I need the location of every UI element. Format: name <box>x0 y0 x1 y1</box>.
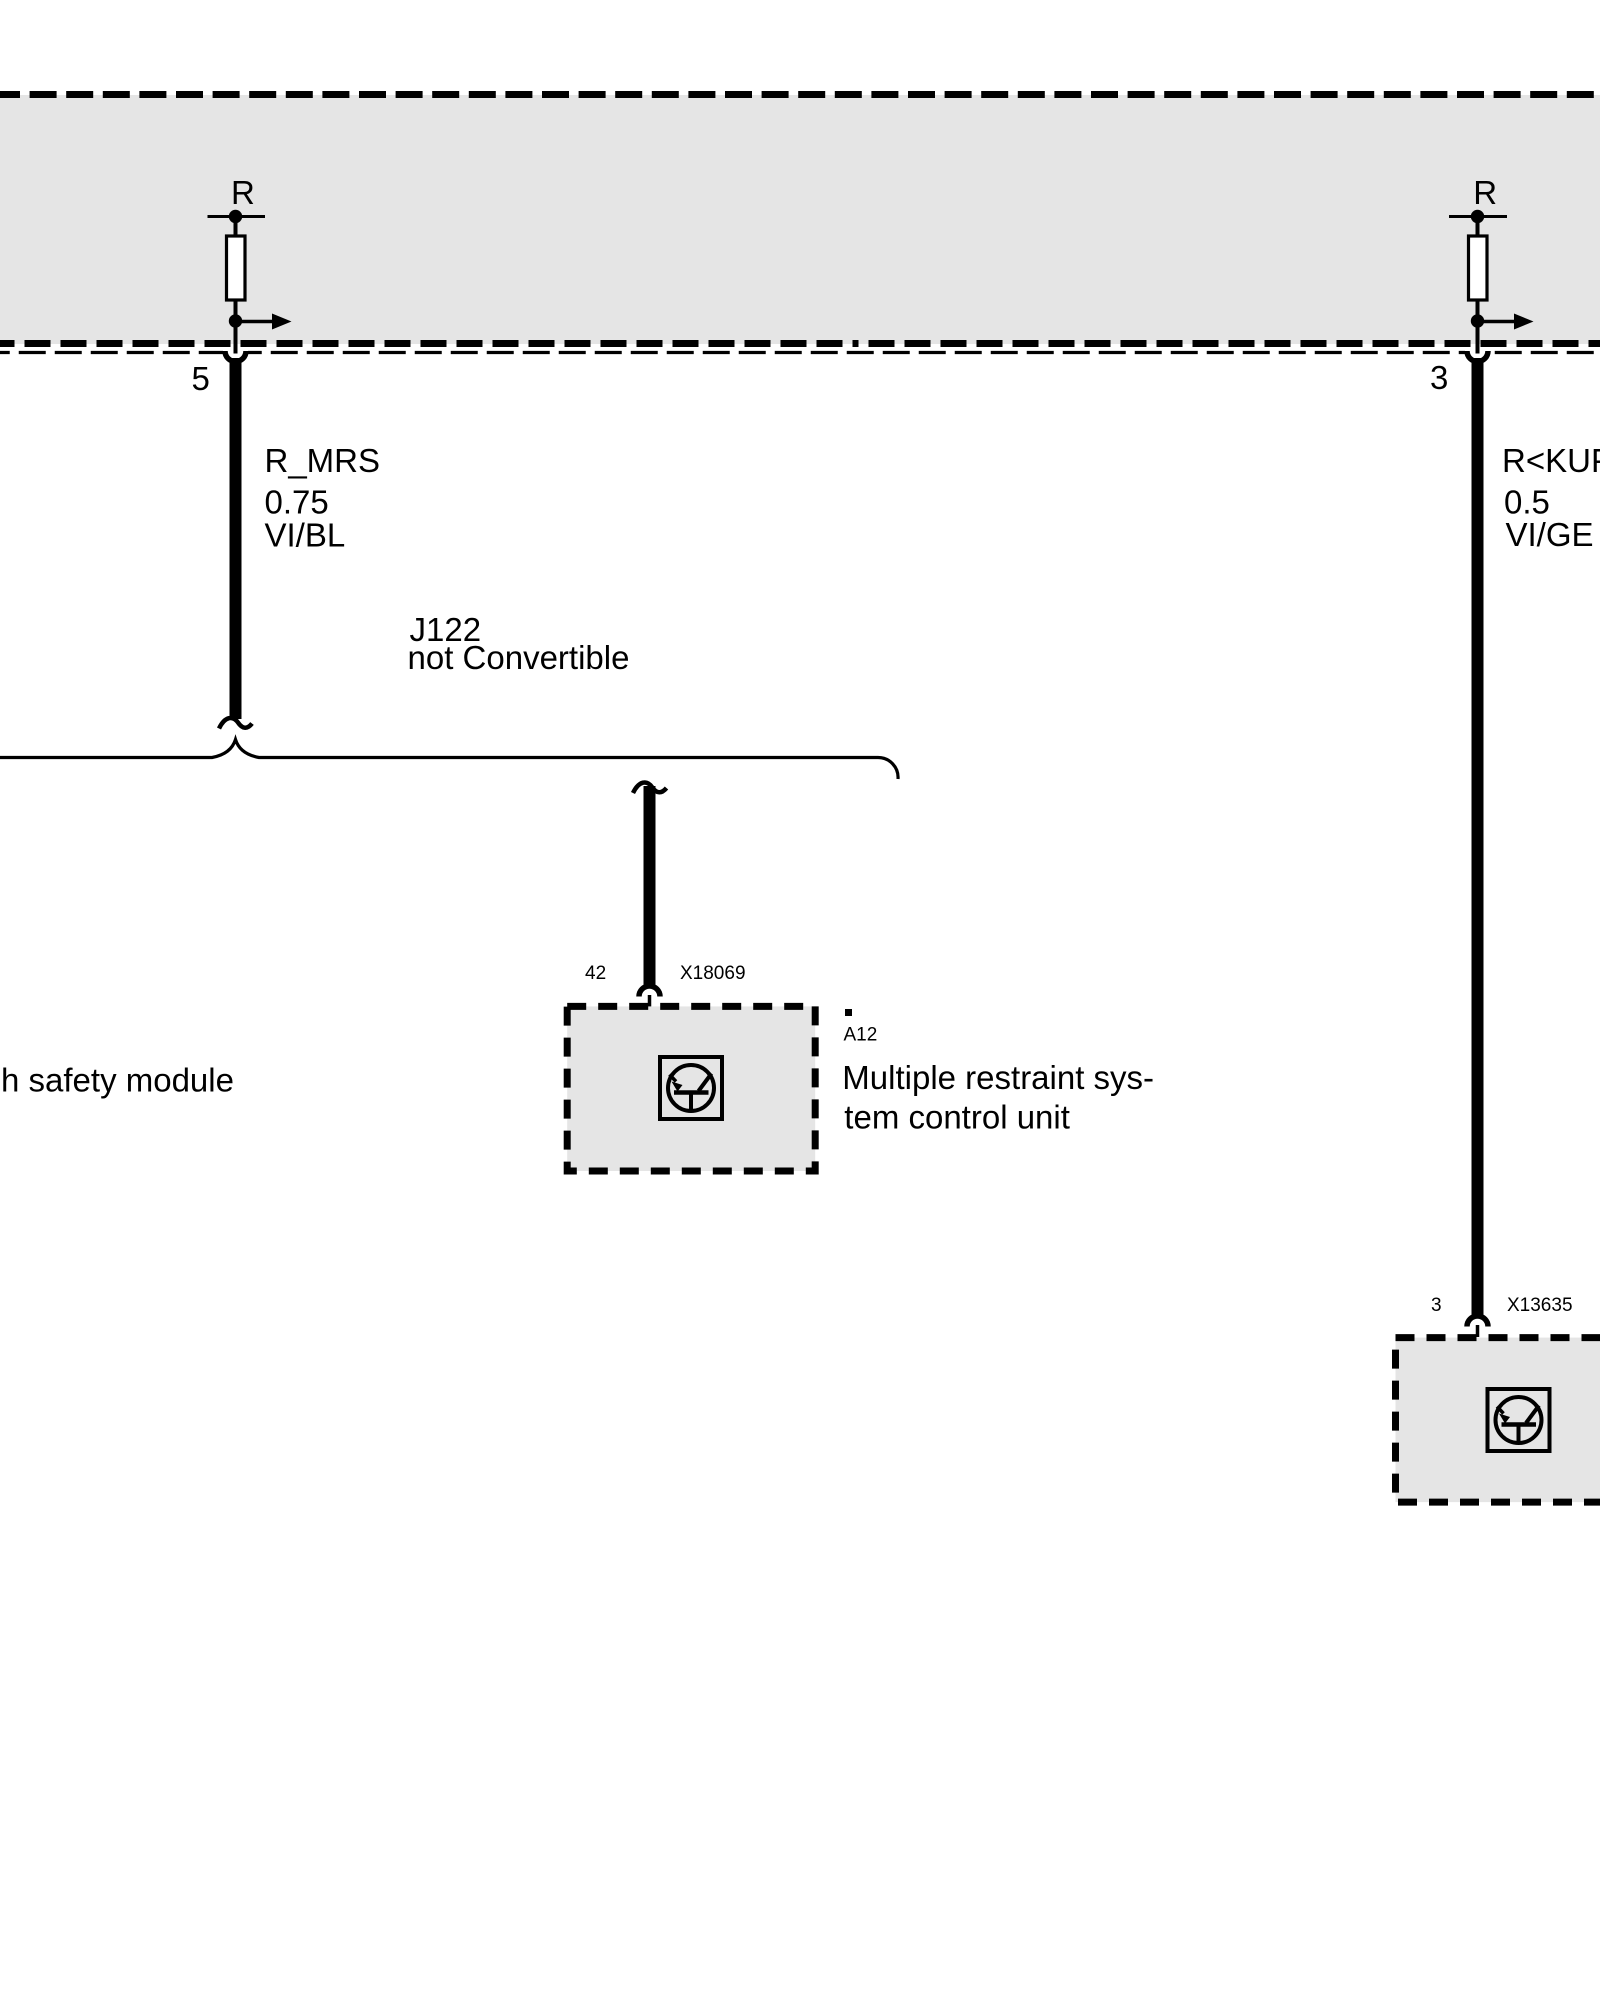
svg-text:VI/GE: VI/GE <box>1506 516 1594 553</box>
svg-text:X13635: X13635 <box>1507 1295 1573 1316</box>
svg-text:3: 3 <box>1430 359 1448 396</box>
svg-text:R_MRS: R_MRS <box>265 442 381 479</box>
svg-text:5: 5 <box>192 360 210 397</box>
svg-text:Multiple restraint sys-: Multiple restraint sys- <box>842 1059 1154 1096</box>
svg-text:42: 42 <box>585 963 606 984</box>
svg-text:h safety module: h safety module <box>1 1062 234 1099</box>
svg-text:0.75: 0.75 <box>265 484 329 521</box>
svg-text:3: 3 <box>1431 1295 1442 1316</box>
svg-text:X18069: X18069 <box>680 963 746 984</box>
svg-text:VI/BL: VI/BL <box>265 517 346 554</box>
svg-text:not Convertible: not Convertible <box>408 639 630 676</box>
svg-text:R: R <box>231 174 255 211</box>
svg-text:R: R <box>1473 174 1497 211</box>
svg-text:R<KUPPL: R<KUPPL <box>1502 442 1600 479</box>
svg-text:tem control unit: tem control unit <box>844 1099 1070 1136</box>
svg-text:A12: A12 <box>844 1025 878 1046</box>
svg-text:0.5: 0.5 <box>1504 484 1550 521</box>
